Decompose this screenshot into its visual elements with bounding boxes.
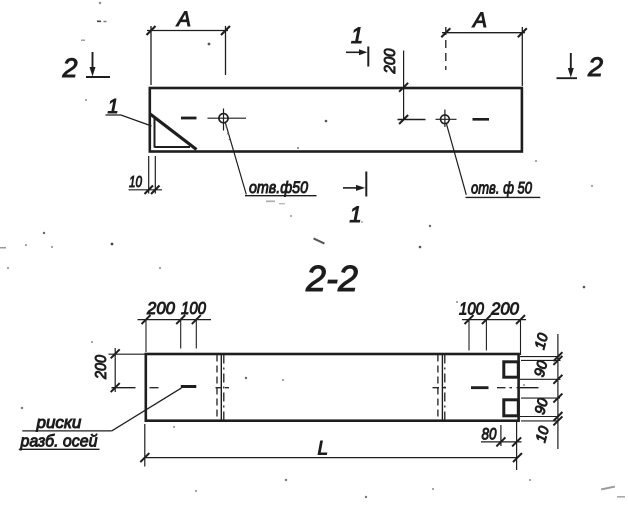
svg-text:200: 200 bbox=[146, 298, 175, 318]
svg-text:200: 200 bbox=[93, 355, 110, 380]
svg-text:риски: риски bbox=[36, 413, 82, 432]
svg-text:отв. ф 50: отв. ф 50 bbox=[471, 179, 532, 198]
svg-text:L: L bbox=[318, 439, 329, 460]
svg-text:A: A bbox=[471, 9, 487, 32]
svg-text:10: 10 bbox=[533, 425, 553, 445]
svg-text:1: 1 bbox=[351, 23, 363, 48]
svg-text:2: 2 bbox=[61, 53, 77, 83]
svg-text:200: 200 bbox=[382, 48, 399, 74]
svg-text:разб. осей: разб. осей bbox=[20, 432, 98, 451]
svg-text:100: 100 bbox=[459, 299, 484, 319]
svg-text:90: 90 bbox=[532, 359, 552, 379]
svg-text:10: 10 bbox=[532, 332, 552, 352]
svg-text:100: 100 bbox=[181, 298, 206, 318]
svg-text:10: 10 bbox=[129, 174, 142, 191]
svg-text:2-2: 2-2 bbox=[305, 258, 358, 299]
svg-text:90: 90 bbox=[532, 397, 552, 417]
svg-text:1: 1 bbox=[349, 202, 361, 227]
svg-text:200: 200 bbox=[490, 299, 519, 319]
svg-text:80: 80 bbox=[482, 426, 498, 444]
svg-text:2: 2 bbox=[587, 52, 603, 82]
svg-text:A: A bbox=[175, 8, 191, 31]
svg-text:отв.ф50: отв.ф50 bbox=[249, 178, 308, 197]
